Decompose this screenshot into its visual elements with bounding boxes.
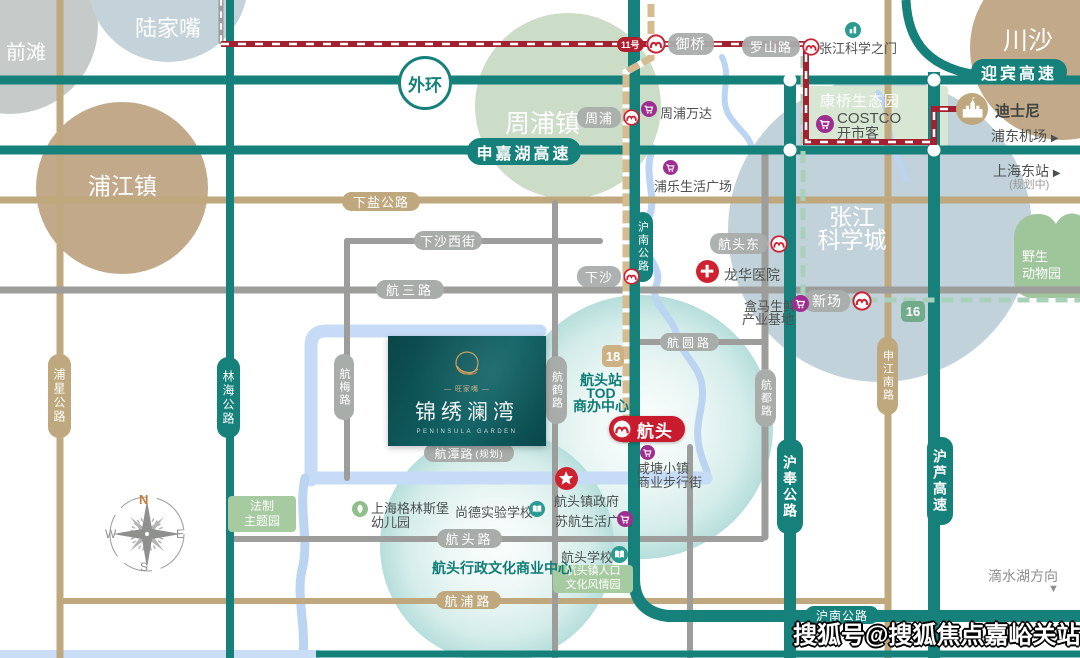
xiantang-mall-icon [640,445,655,460]
metro-logo-icon [802,38,820,56]
station-zhoupu: 周浦 [577,107,640,128]
tod-center-label: 航头站 TOD 商办中心 [565,374,637,413]
road-pill-puxing: 浦星公路 [48,354,71,438]
compass-w-label: W [105,527,116,541]
station-pill-hangtoudong: 航头东 [710,233,768,254]
road-pill-xiayan: 下盐公路 [342,192,420,211]
poi-town-government: 航头镇政府 [554,491,619,510]
east-station-arrow-icon: ▶ [1053,168,1061,179]
road-pill-hulu: 沪芦高速 [927,437,953,525]
district-label-kangqiao: 康桥生态园 [820,90,900,111]
district-label-zhangjiang: 张江 科学城 [800,206,904,252]
waihuan-ring-badge: 外环 [398,56,452,110]
greensburg-line1: 上海格林斯堡 [371,502,449,516]
hangtan-label: 航潭路 [434,445,473,462]
poi-pudong-airport: 浦东机场 ▶ [991,126,1059,146]
wanda-mall-icon [641,101,657,117]
poi-zhangjiang-gate: 张江科学之门 [819,38,897,57]
district-label-lujiazui: 陆家嘴 [135,11,201,43]
station-pill-xinchang: 新场 [804,290,850,312]
fazhi-theme-park-box: 法制 主题园 [228,496,296,532]
xiantang-line2: 商业步行街 [637,476,702,490]
east-station-planned-note: (规划中) [1009,176,1049,192]
road-pill-xiashaxijie: 下沙西街 [414,231,482,250]
project-emblem-icon [449,348,485,382]
road-pill-linhai: 林海公路 [217,357,240,438]
metro-logo-icon [623,268,640,285]
station-pill-zhoupu: 周浦 [577,107,621,128]
zhangjiang-line1: 张江 [800,206,904,229]
disney-castle-icon [956,93,988,125]
hema-cart-icon [792,295,809,312]
poi-pule-plaza: 浦乐生活广场 [654,176,732,195]
zhangjiang-line2: 科学城 [800,229,904,252]
metro-logo-icon [646,34,666,54]
poi-disney: 迪士尼 [995,100,1040,121]
station-pill-yuqiao: 御桥 [668,33,714,55]
dishuihu-arrow-icon: ▼ [1048,583,1059,595]
suhang-cart-icon [617,511,633,527]
station-pill-hangtou: 航头 [637,417,673,442]
hangtan-planned-note: (规划) [476,447,504,460]
poi-hema-line2: 产业基地 [742,309,794,328]
poi-shangde-school: 尚德实验学校 [455,502,533,521]
station-luoshanlu: 罗山路 [742,36,820,57]
location-map: 前滩 陆家嘴 浦江镇 周浦镇 川沙 张江 科学城 野生 动物园 康桥生态园 外环… [0,0,1080,658]
tod-line3: 商办中心 [565,400,637,413]
zhangjiang-gate-icon [845,22,861,38]
road-pill-hangsan: 航三路 [376,280,444,299]
road-pill-shenjiangnan: 申江南路 [877,337,898,415]
district-label-zhoupu: 周浦镇 [505,104,580,140]
project-name-en-label: PENINSULA GARDEN [416,429,517,435]
station-hangtoudong: 航头东 [710,233,788,254]
hangtou-school-book-icon [611,546,628,563]
road-pill-hangpu: 航浦路 [436,591,501,609]
admin-center-label: 航头行政文化商业中心 [432,558,572,578]
district-label-qiantan: 前滩 [6,36,46,65]
road-pill-hangmei: 航梅路 [334,354,354,420]
line11-badge: 11号 [617,37,644,52]
station-hangtou: 航头 [609,416,685,442]
metro-logo-icon [623,109,640,126]
xiantang-line1: 咸塘小镇 [637,462,702,476]
kindergarten-leaf-icon [352,501,368,517]
poi-costco: COSTCO 开市客 [837,112,901,140]
airport-arrow-icon: ▶ [1051,133,1059,144]
station-pill-luoshanlu: 罗山路 [742,36,800,57]
station-yuqiao: 11号 御桥 [617,33,714,55]
renkou-line1: 航头镇人口 [566,565,621,579]
compass-e-label: E [176,527,184,541]
sohu-watermark: 搜狐号@搜狐焦点嘉峪关站 [793,615,1080,650]
line18-badge: 18 [602,345,624,367]
road-pill-hangtan: 航潭路 (规划) [424,444,514,462]
road-pill-hangyuan: 航圆路 [660,333,719,351]
costco-line2: 开市客 [837,126,901,140]
poi-wanda: 周浦万达 [660,103,712,122]
costco-icon [816,115,834,133]
station-xiasha: 下沙 [577,266,640,287]
shangde-book-icon [529,501,545,517]
renkou-line2: 文化风情园 [566,579,621,593]
project-name-label: 锦绣澜湾 [415,396,519,426]
airport-label: 浦东机场 [991,128,1047,144]
compass-s-label: S [140,560,148,574]
road-pill-hangtoulu: 航头路 [437,529,502,548]
greensburg-line2: 幼儿园 [371,516,449,530]
project-logo-card: — 旺家嘴 — 锦绣澜湾 PENINSULA GARDEN [388,336,546,446]
district-label-chuansha: 川沙 [1003,21,1053,57]
shenjiahu-expressway-pill: 申嘉湖高速 [467,138,581,165]
hospital-cross-icon [696,260,719,283]
district-label-wildlife: 野生 动物园 [1022,248,1061,282]
wildlife-line2: 动物园 [1022,265,1061,282]
government-star-icon [555,467,578,490]
metro-logo-icon [770,235,788,253]
fazhi-line1: 法制 [250,499,274,514]
wildlife-line1: 野生 [1022,248,1061,265]
metro-logo-icon [611,418,633,440]
pule-plaza-icon [663,160,678,175]
road-pill-hangdu: 航都路 [755,369,776,427]
poi-longhua-hospital: 龙华医院 [724,265,780,285]
station-xinchang: 新场 [804,290,872,312]
yingbin-expressway-pill: 迎宾高速 [971,59,1067,84]
district-label-pujiang: 浦江镇 [88,167,157,201]
compass-n-label: N [139,492,148,507]
road-pill-hufeng: 沪奉公路 [777,439,803,534]
station-pill-xiasha: 下沙 [577,266,621,287]
poi-greensburg-kindergarten: 上海格林斯堡 幼儿园 [371,502,449,530]
poi-xiantang: 咸塘小镇 商业步行街 [637,462,702,490]
project-brand-label: — 旺家嘴 — [444,384,490,394]
fazhi-line2: 主题园 [244,514,280,529]
costco-line1: COSTCO [837,112,901,126]
line16-badge: 16 [901,301,925,322]
road-pill-hanghe: 航鹤路 [546,356,567,424]
metro-logo-icon [852,291,872,311]
